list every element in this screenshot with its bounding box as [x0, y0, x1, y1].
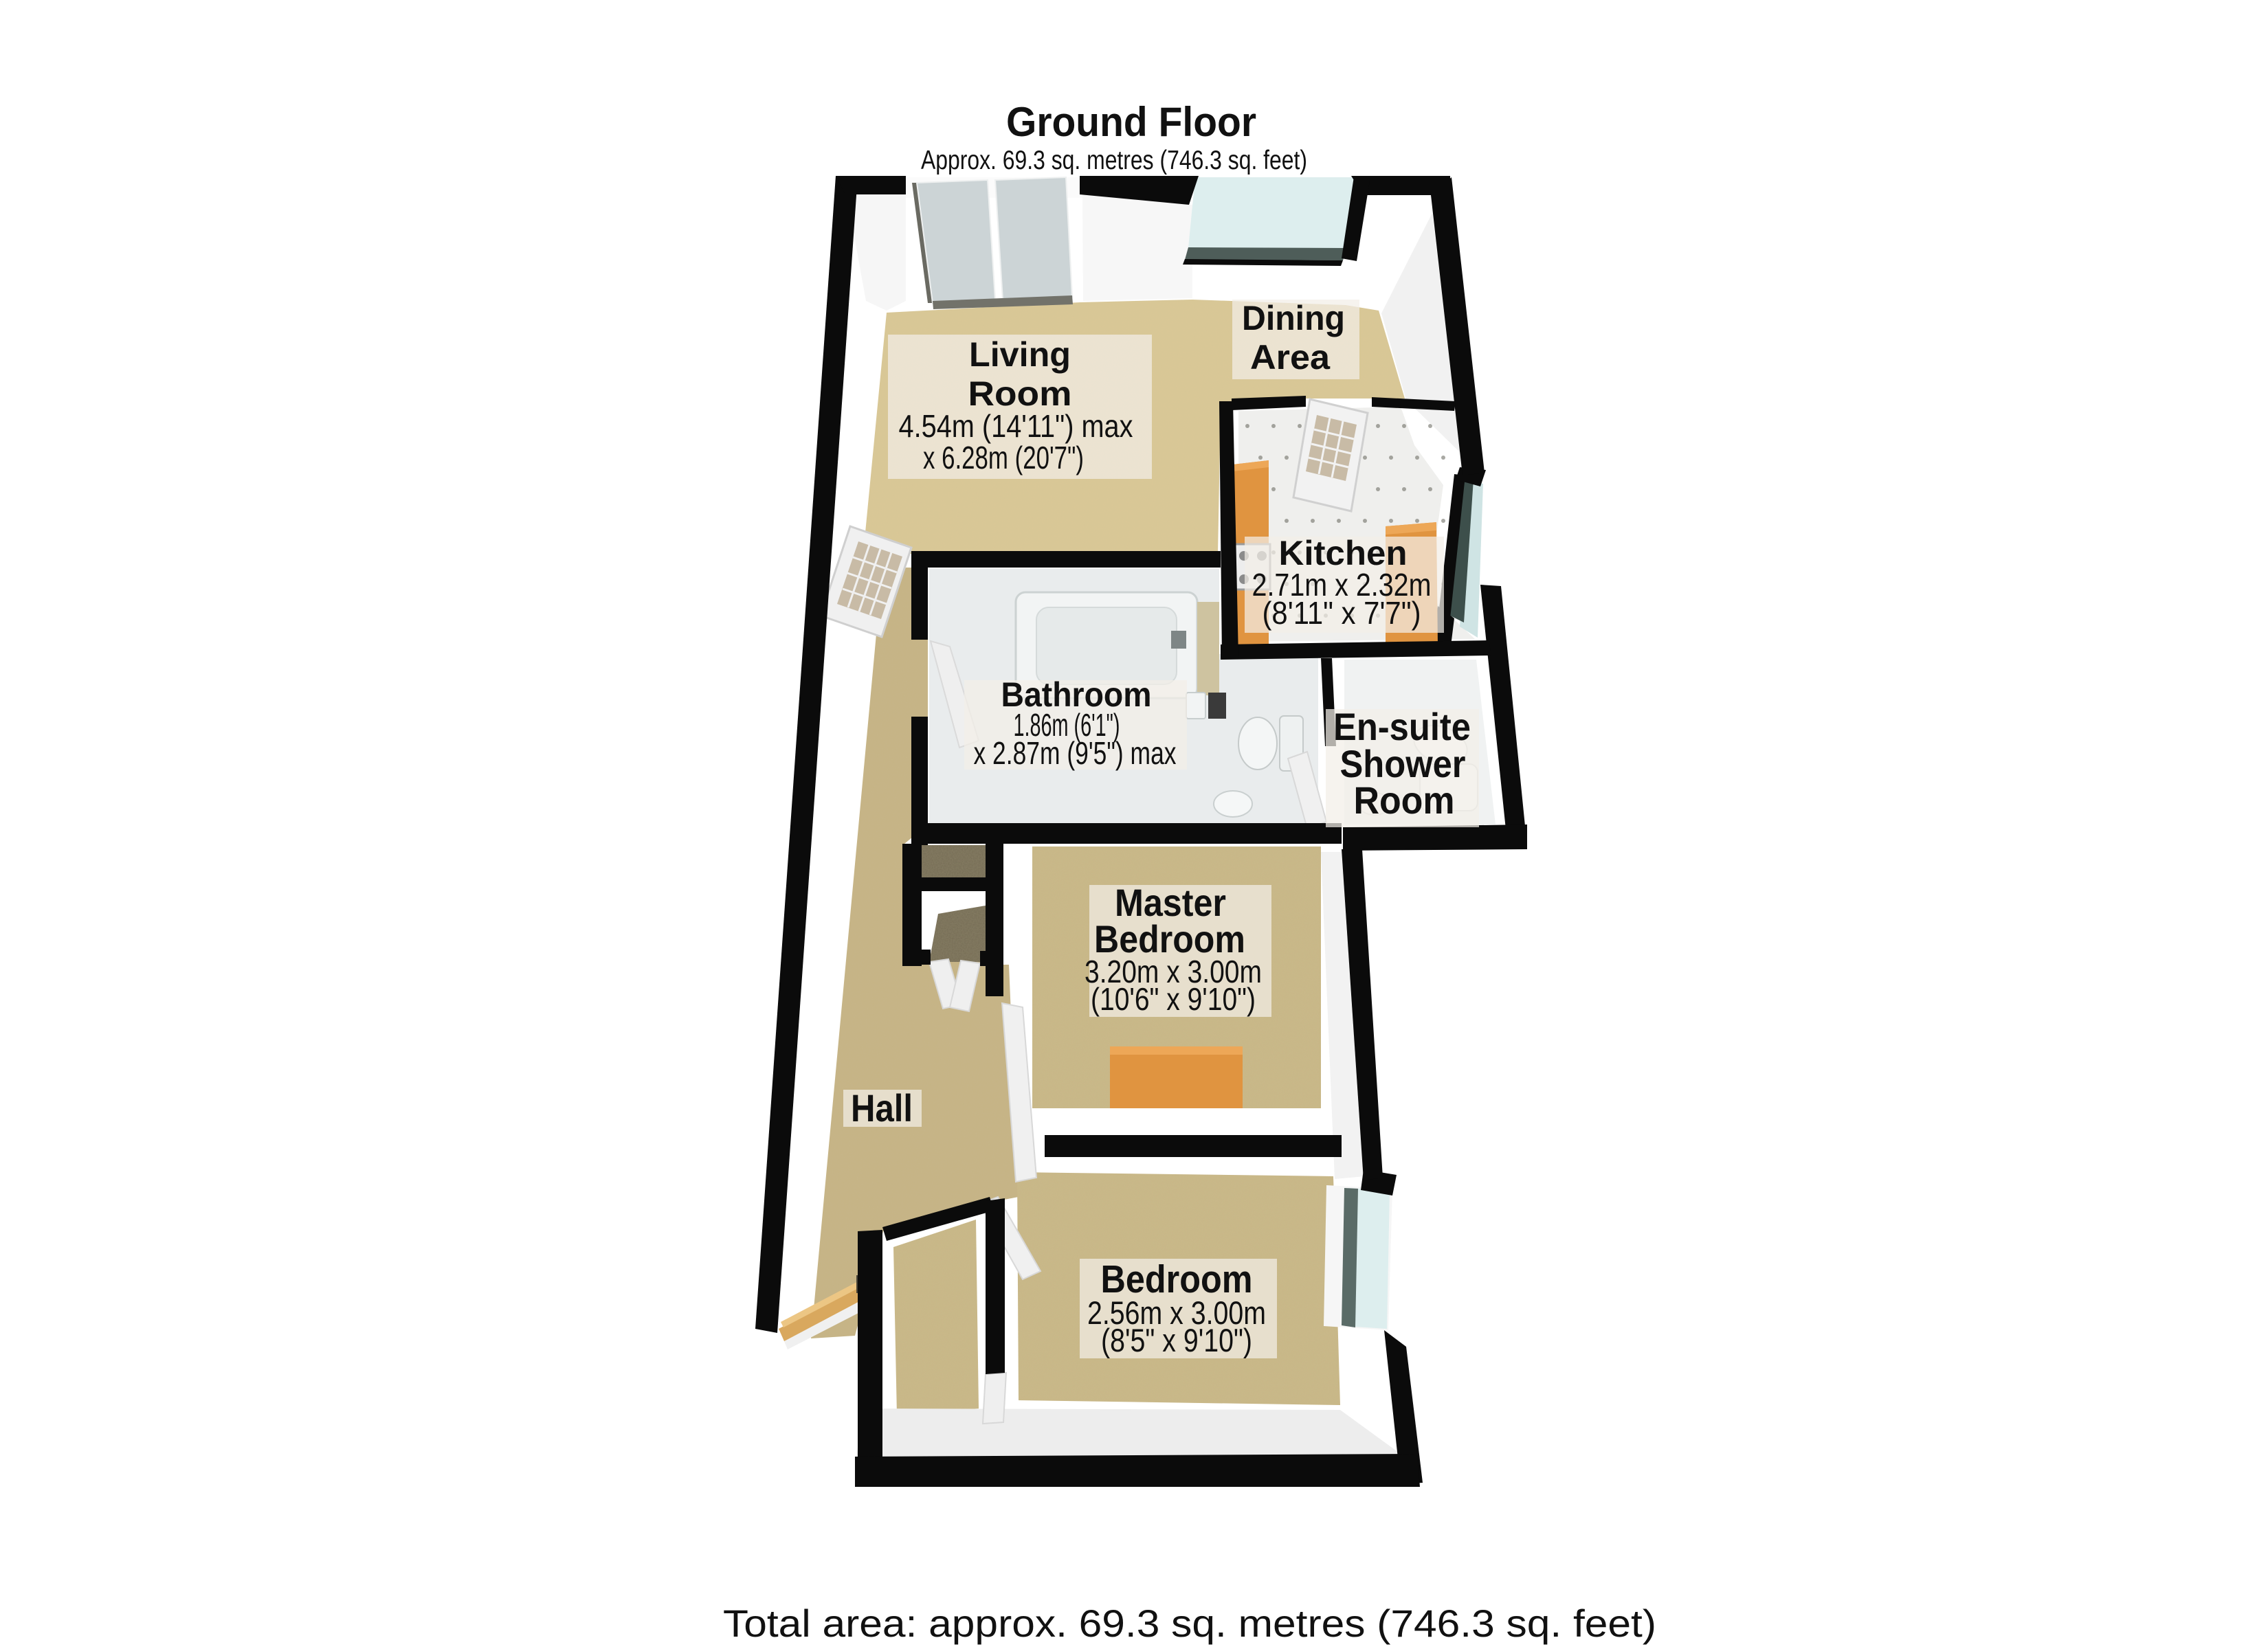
svg-text:x 2.87m (9'5") max: x 2.87m (9'5") max: [974, 735, 1177, 771]
svg-text:Total area: approx. 69.3 sq. m: Total area: approx. 69.3 sq. metres (746…: [723, 1602, 1656, 1645]
svg-text:Room: Room: [1354, 778, 1455, 822]
svg-text:Approx. 69.3 sq. metres (746.3: Approx. 69.3 sq. metres (746.3 sq. feet): [921, 146, 1307, 175]
svg-text:Living: Living: [969, 335, 1071, 374]
svg-text:Ground Floor: Ground Floor: [1006, 99, 1256, 145]
svg-text:(8'11" x 7'7"): (8'11" x 7'7"): [1263, 595, 1421, 631]
svg-text:Area: Area: [1250, 338, 1331, 377]
svg-text:x 6.28m (20'7"): x 6.28m (20'7"): [923, 440, 1084, 475]
svg-text:(10'6" x 9'10"): (10'6" x 9'10"): [1091, 981, 1256, 1017]
svg-text:4.54m (14'11") max: 4.54m (14'11") max: [899, 408, 1133, 444]
svg-text:Hall: Hall: [851, 1086, 913, 1130]
svg-text:Dining: Dining: [1242, 299, 1345, 337]
svg-text:Room: Room: [968, 374, 1072, 413]
svg-text:(8'5" x 9'10"): (8'5" x 9'10"): [1101, 1322, 1252, 1358]
